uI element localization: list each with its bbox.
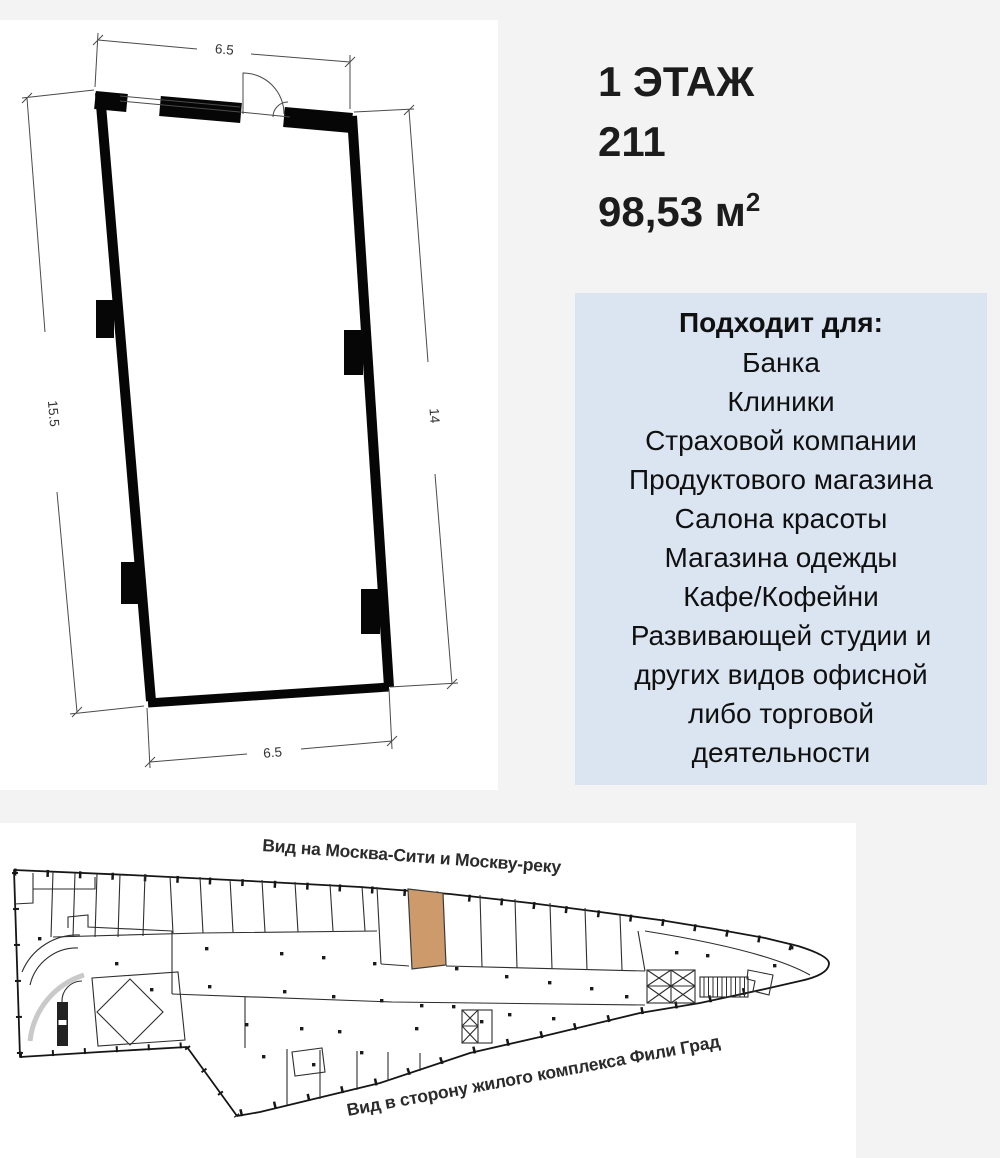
highlighted-unit <box>408 889 446 969</box>
dim-left-label: 15.5 <box>45 400 62 427</box>
door-swing <box>243 73 288 117</box>
dim-top-label: 6.5 <box>214 41 234 58</box>
unit-info: 1 ЭТАЖ 211 98,53 м2 <box>598 52 760 242</box>
suitable-item: Страховой компании <box>575 421 987 460</box>
suitable-item: Кафе/Кофейни <box>575 577 987 616</box>
suitable-item: Банка <box>575 343 987 382</box>
unit-walls <box>95 93 389 703</box>
dim-right-label: 14 <box>426 408 442 425</box>
ramp-arcs <box>22 935 84 1041</box>
dim-bottom-label: 6.5 <box>263 744 283 761</box>
elevator-core <box>647 970 695 1003</box>
wall-columns <box>96 300 380 634</box>
stair-hatch <box>700 977 748 997</box>
floor-label: 1 ЭТАЖ <box>598 52 760 112</box>
suitable-item: Магазина одежды <box>575 538 987 577</box>
area-superscript: 2 <box>746 187 760 217</box>
stair-core <box>462 1010 492 1043</box>
page: { "unit_info": { "floor": "1 ЭТАЖ", "num… <box>0 0 1000 1158</box>
suitable-item: Продуктового магазина <box>575 460 987 499</box>
unit-area: 98,53 м2 <box>598 172 760 242</box>
unit-number: 211 <box>598 112 760 172</box>
escalator-bar <box>57 1002 68 1046</box>
suitable-item: Клиники <box>575 382 987 421</box>
facade-ticks <box>14 872 795 1116</box>
suitable-item: Развивающей студии и других видов офисно… <box>575 616 987 772</box>
view-label-top: Вид на Москва-Сити и Москву-реку <box>262 835 562 877</box>
suitable-for-box: Подходит для: Банка Клиники Страховой ко… <box>575 293 987 785</box>
suitable-for-title: Подходит для: <box>575 303 987 343</box>
unit-floor-plan: 6.5 15.5 14 6.5 <box>0 0 500 800</box>
suitable-item: Салона красоты <box>575 499 987 538</box>
building-overview-plan: Вид на Москва-Сити и Москву-реку Вид в с… <box>0 823 856 1158</box>
